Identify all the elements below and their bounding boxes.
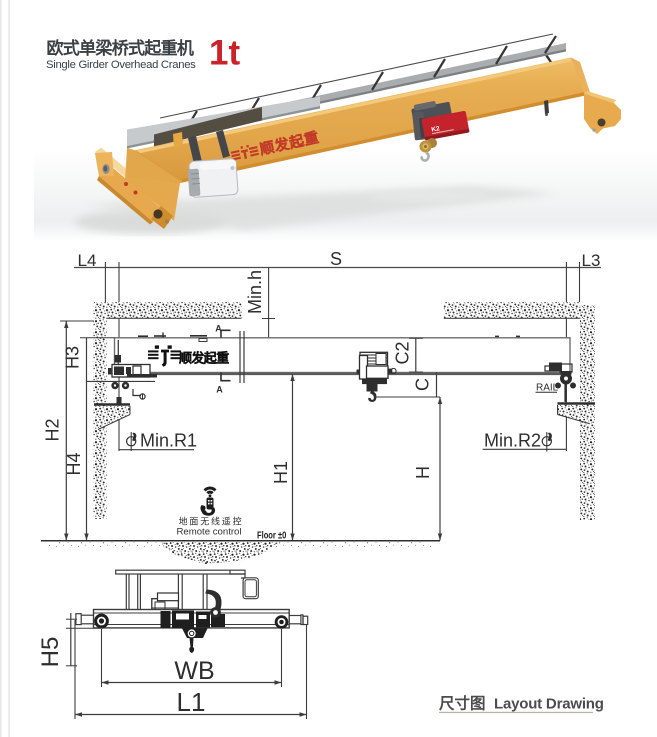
svg-text:C: C (413, 378, 433, 391)
svg-text:L4: L4 (78, 251, 97, 270)
svg-text:Floor ±0: Floor ±0 (257, 529, 286, 540)
svg-text:Min.R1: Min.R1 (140, 431, 197, 451)
svg-text:L3: L3 (582, 251, 601, 270)
svg-text:Remote control: Remote control (176, 527, 241, 538)
svg-text:S: S (330, 249, 342, 269)
svg-text:Single Girder Overhead Cranes: Single Girder Overhead Cranes (46, 59, 196, 71)
svg-text:顺发起重: 顺发起重 (179, 351, 229, 366)
svg-text:H4: H4 (64, 452, 84, 475)
svg-text:L1: L1 (177, 687, 206, 717)
svg-text:C2: C2 (393, 341, 413, 364)
svg-text:WB: WB (174, 657, 214, 685)
svg-text:A: A (215, 324, 222, 334)
svg-text:H1: H1 (271, 461, 291, 484)
svg-text:H: H (413, 466, 433, 479)
svg-text:H5: H5 (37, 637, 64, 668)
svg-text:地面无线遥控: 地面无线遥控 (179, 516, 244, 527)
svg-text:H3: H3 (63, 346, 83, 369)
svg-text:Layout Drawing: Layout Drawing (494, 696, 604, 713)
svg-text:欧式单梁桥式起重机: 欧式单梁桥式起重机 (47, 38, 194, 58)
svg-text:1t: 1t (209, 34, 240, 73)
svg-text:Min.h: Min.h (245, 270, 265, 314)
svg-text:A: A (216, 385, 223, 395)
svg-text:尺寸图: 尺寸图 (439, 694, 486, 713)
svg-text:H2: H2 (43, 418, 63, 441)
svg-text:Min.R2: Min.R2 (484, 431, 541, 451)
